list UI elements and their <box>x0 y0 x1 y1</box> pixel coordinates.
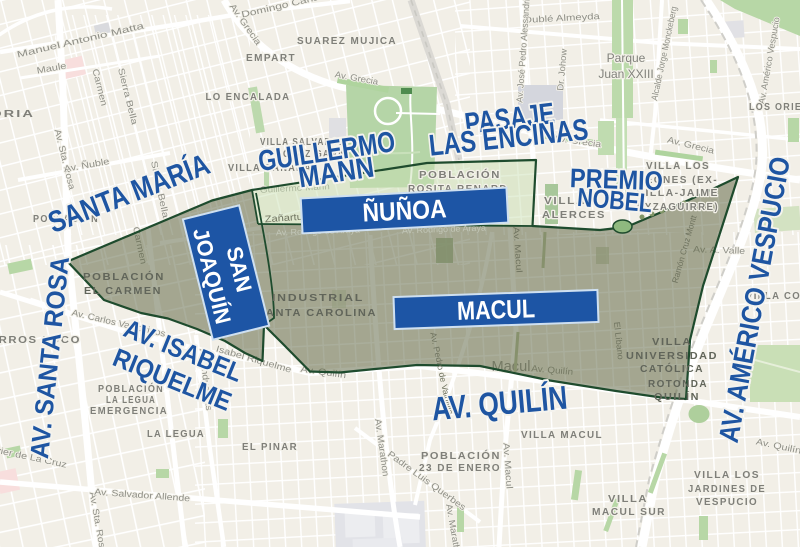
svg-text:23 DE ENERO: 23 DE ENERO <box>419 462 501 474</box>
svg-text:POBLACIÓN: POBLACIÓN <box>83 270 165 283</box>
svg-text:LO ENCALADA: LO ENCALADA <box>206 91 291 103</box>
svg-text:ÑUÑOA: ÑUÑOA <box>362 193 448 227</box>
svg-text:VILLA: VILLA <box>652 336 692 348</box>
svg-text:POBLACIÓN: POBLACIÓN <box>419 168 501 181</box>
svg-text:Juan XXIII: Juan XXIII <box>598 67 653 81</box>
svg-text:MACUL: MACUL <box>457 293 536 326</box>
svg-text:SANTA CAROLINA: SANTA CAROLINA <box>257 307 377 319</box>
svg-text:SUAREZ MUJICA: SUAREZ MUJICA <box>297 35 397 47</box>
svg-text:VILLA MACUL: VILLA MACUL <box>521 429 603 441</box>
svg-text:EL CARMEN: EL CARMEN <box>84 285 162 297</box>
svg-text:VILLA LOS: VILLA LOS <box>694 469 760 481</box>
svg-text:VICTORIA: VICTORIA <box>0 108 35 120</box>
svg-text:QUILÍN: QUILÍN <box>654 390 700 403</box>
svg-text:MACUL SUR: MACUL SUR <box>592 506 666 518</box>
svg-text:VESPUCIO: VESPUCIO <box>696 496 758 508</box>
svg-text:CATÓLICA: CATÓLICA <box>640 362 704 375</box>
svg-text:Parque: Parque <box>607 51 646 65</box>
svg-text:LOS ORIENTALES: LOS ORIENTALES <box>749 101 800 113</box>
svg-text:INDUSTRIAL: INDUSTRIAL <box>272 292 364 304</box>
svg-text:POBLACIÓN: POBLACIÓN <box>421 449 501 462</box>
svg-text:JARDINES DE: JARDINES DE <box>688 483 766 495</box>
svg-text:EMERGENCIA: EMERGENCIA <box>90 405 168 417</box>
svg-text:EL PINAR: EL PINAR <box>242 441 298 453</box>
svg-text:ROTONDA: ROTONDA <box>648 378 708 390</box>
svg-text:LA LEGUA: LA LEGUA <box>147 428 205 440</box>
svg-text:EMPART: EMPART <box>246 52 296 64</box>
svg-text:VILLA: VILLA <box>608 493 648 505</box>
svg-text:UNIVERSIDAD: UNIVERSIDAD <box>626 350 718 362</box>
